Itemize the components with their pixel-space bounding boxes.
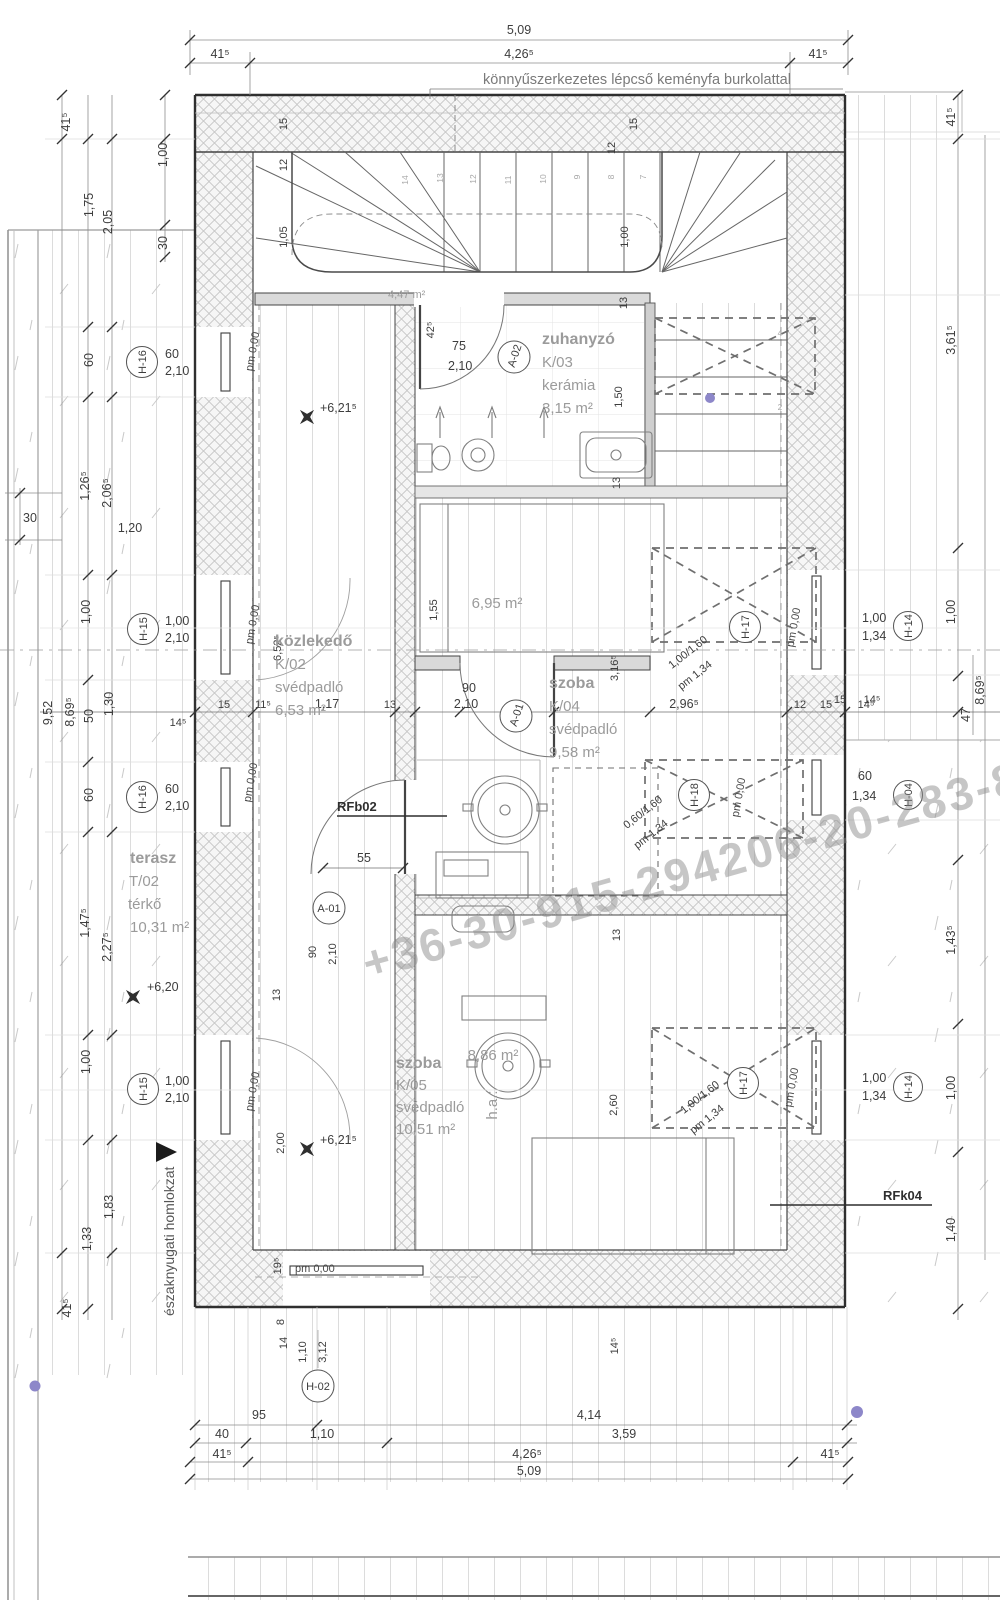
dim: 1,75	[82, 193, 96, 217]
dim: 2,06⁵	[100, 478, 114, 508]
dim: 1,40	[944, 1218, 958, 1242]
tag-dim: 60	[165, 347, 179, 361]
step-number: 4	[778, 328, 783, 338]
dim: 1,83	[102, 1195, 116, 1219]
tag-dim: 3,12	[317, 1341, 329, 1362]
adjacent-area: 4,47 m²	[388, 289, 426, 301]
dim: 15	[628, 118, 640, 130]
tag-h17a: H-17	[740, 615, 752, 639]
tag-h15b: H-15	[138, 1077, 150, 1101]
dim: 1,55	[428, 599, 440, 620]
tag-dim: 1,00	[165, 614, 189, 628]
purple-dot-left	[30, 1381, 41, 1392]
step-number: 8	[606, 174, 616, 179]
dim: 1,43⁵	[944, 925, 958, 955]
dim: 41⁵	[944, 107, 958, 126]
tag-dim: 1,34	[862, 1089, 886, 1103]
room-name-shower: zuhanyzó	[542, 331, 615, 348]
dim: 2,60	[608, 1094, 620, 1115]
dim: 8,69⁵	[63, 697, 77, 727]
purple-dot-top	[705, 393, 715, 403]
window-h16b	[221, 768, 230, 826]
room-name-terrace: terasz	[130, 850, 176, 867]
room-area-shower: 3,15 m²	[542, 400, 593, 417]
dim: 2,05	[101, 210, 115, 234]
tag-dim: 60	[165, 782, 179, 796]
room-code-corridor: K/02	[275, 656, 306, 673]
dim: 60	[82, 353, 96, 367]
dim: 15	[820, 699, 832, 711]
stair-note: könnyűszerkezetes lépcső keményfa burkol…	[483, 72, 791, 88]
tag-dim: 60	[858, 769, 872, 783]
tag-dim: 2,10	[165, 1091, 189, 1105]
dim: 1,26⁵	[78, 471, 92, 501]
room-area-room1: 9,58 m²	[549, 744, 600, 761]
dim: 1,00	[156, 143, 170, 167]
dim: 12	[606, 142, 618, 154]
room-name-room2: szoba	[396, 1055, 441, 1072]
step-number: 11	[503, 175, 513, 184]
level-value: +6,21⁵	[320, 401, 357, 415]
dim: 41⁵	[210, 47, 229, 61]
tag-h16a: H-16	[137, 350, 149, 374]
dim: 2,27⁵	[100, 932, 114, 962]
room-floor-room1: svédpadló	[549, 721, 617, 738]
tag-dim: 1,00	[165, 1074, 189, 1088]
dim: 13	[271, 989, 283, 1001]
dim: 9,52	[41, 701, 55, 725]
dim: 1,00	[79, 600, 93, 624]
dim: 41⁵	[212, 1447, 231, 1461]
level-value: +6,20	[147, 980, 179, 994]
tag-dim: 1,10	[297, 1341, 309, 1362]
step-number: 2	[778, 402, 783, 412]
dim: 55	[357, 851, 371, 865]
tag-dim: 1,00	[862, 611, 886, 625]
dim: 8	[275, 1319, 287, 1325]
dim: 30	[23, 511, 37, 525]
level-value: +6,21⁵	[320, 1133, 357, 1147]
window-h16a	[221, 333, 230, 391]
room-subarea-room1: 6,95 m²	[472, 595, 523, 612]
room-code-room1: K/04	[549, 698, 580, 715]
dim: 1,00	[79, 1050, 93, 1074]
dim: 19⁵	[272, 1258, 284, 1275]
room-floor-shower: kerámia	[542, 377, 596, 394]
tag-dim: 90	[307, 946, 319, 958]
window-door-h15b	[221, 1041, 230, 1134]
dim: 12	[794, 699, 806, 711]
dim: 4,26⁵	[512, 1447, 542, 1461]
room-area-terrace: 10,31 m²	[130, 919, 189, 936]
dim: 4,26⁵	[504, 47, 534, 61]
dim: 41⁵	[59, 112, 73, 131]
dim: 14⁵	[609, 1338, 621, 1355]
room-name-room1: szoba	[549, 675, 594, 692]
purple-dot-right	[851, 1406, 863, 1418]
floor-plan-canvas: H-16 H-15 H-16 H-15 H-02 H-17 H-18 H-17 …	[0, 0, 1000, 1600]
dim: 13	[618, 297, 630, 309]
tag-dim: 2,10	[327, 943, 339, 964]
dim: 41⁵	[820, 1447, 839, 1461]
tag-dim: 2,10	[165, 364, 189, 378]
dim: 1,10	[310, 1427, 334, 1441]
dim: 14⁵	[170, 717, 187, 729]
dim: 12	[278, 159, 290, 171]
dim: 2,00	[275, 1132, 287, 1153]
room-floor-terrace: térkő	[128, 896, 161, 913]
dim: 42⁵	[425, 322, 437, 339]
tag-a01b: A-01	[317, 903, 340, 915]
tag-dim: 2,10	[448, 359, 472, 373]
tag-dim: 2,10	[165, 799, 189, 813]
dim: 41⁵	[808, 47, 827, 61]
stair-lower-floor	[655, 303, 787, 488]
room-area-corridor: 6,53 m²	[275, 702, 326, 719]
tag-h14a: H-14	[903, 614, 915, 638]
dim: 15	[834, 694, 846, 706]
step-number: 9	[572, 174, 582, 179]
dim: 2,96⁵	[669, 697, 699, 711]
tag-h02: H-02	[306, 1381, 330, 1393]
tag-h16b: H-16	[137, 785, 149, 809]
ref-rfk04: RFk04	[883, 1188, 923, 1203]
step-number: 13	[435, 173, 445, 183]
dim: 8,69⁵	[973, 675, 987, 705]
dim: 1,30	[102, 692, 116, 716]
room-code-terrace: T/02	[129, 873, 159, 890]
dim: 3,16⁵	[609, 655, 621, 681]
dim: 41⁵	[60, 1298, 74, 1317]
tag-h14b: H-14	[903, 1075, 915, 1099]
dim: 47	[959, 708, 973, 722]
dim: 50	[82, 709, 96, 723]
dim-door-height: 2,10	[454, 697, 478, 711]
pm-level: pm 0,00	[295, 1263, 335, 1275]
dim: 1,00	[944, 600, 958, 624]
dim: 30	[156, 236, 170, 250]
facade-label: északnyugati homlokzat	[161, 1166, 177, 1316]
tag-dim: 1,34	[862, 629, 886, 643]
room-floor-room2: svédpadló	[396, 1099, 464, 1116]
dim: 13	[611, 929, 623, 941]
room-area-room2: 10,51 m²	[396, 1121, 455, 1138]
dim: 3,61⁵	[944, 325, 958, 355]
room-subarea-room2: 8,86 m²	[468, 1047, 519, 1064]
tag-h18: H-18	[689, 783, 701, 807]
tag-h15a: H-15	[138, 617, 150, 641]
dim: 1,50	[613, 386, 625, 407]
bottom-deck-band	[190, 1557, 1000, 1600]
window-door-h15a	[221, 581, 230, 674]
room-code-room2: K/05	[396, 1077, 427, 1094]
dim: 11⁵	[255, 699, 271, 711]
step-number: 7	[638, 174, 648, 179]
dim: 1,47⁵	[78, 908, 92, 938]
dim: 3,59	[612, 1427, 636, 1441]
dim: 1,33	[80, 1227, 94, 1251]
ha-label: h.a.:	[484, 1090, 501, 1119]
tag-dim: 2,10	[165, 631, 189, 645]
dim: 5,09	[517, 1464, 541, 1478]
step-number: 10	[538, 174, 548, 184]
dim: 1,05	[278, 226, 290, 247]
dim: 95	[252, 1408, 266, 1422]
dim: 1,00	[619, 226, 631, 247]
dim: 14	[278, 1337, 290, 1349]
dim-door-width: 90	[462, 681, 476, 695]
step-number: 12	[468, 174, 478, 184]
room-code-shower: K/03	[542, 354, 573, 371]
dim: 15	[218, 699, 230, 711]
dim: 14⁵	[858, 699, 875, 711]
dim: 1,00	[944, 1076, 958, 1100]
dim: 4,14	[577, 1408, 601, 1422]
dim: 13	[611, 477, 623, 489]
corridor-floor	[255, 303, 395, 1253]
room-name-corridor: közlekedő	[275, 633, 353, 650]
step-number: 14	[400, 175, 410, 185]
dim: 60	[82, 788, 96, 802]
tag-dim: 1,00	[862, 1071, 886, 1085]
stair-walk-line	[292, 214, 662, 255]
interior-floors	[255, 303, 787, 1253]
dim: 40	[215, 1427, 229, 1441]
ref-rfb02: RFb02	[337, 799, 377, 814]
dim: 5,09	[507, 23, 531, 37]
tag-dim: 75	[452, 339, 466, 353]
dim: 13	[384, 699, 396, 711]
dim: 1,20	[118, 521, 142, 535]
right-deck-planks	[848, 95, 960, 740]
tag-h17b: H-17	[738, 1071, 750, 1095]
room-floor-corridor: svédpadló	[275, 679, 343, 696]
dim: 15	[278, 118, 290, 130]
floor-plan-drawing: H-16 H-15 H-16 H-15 H-02 H-17 H-18 H-17 …	[0, 0, 1000, 1600]
